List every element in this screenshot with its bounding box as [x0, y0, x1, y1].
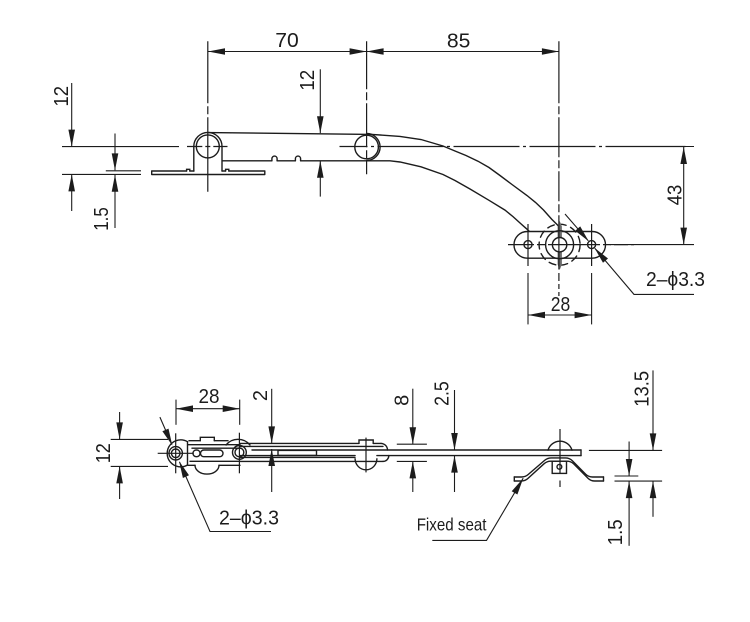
svg-text:28: 28 [199, 386, 220, 408]
svg-text:13.5: 13.5 [631, 371, 653, 407]
svg-text:12: 12 [51, 86, 73, 107]
svg-text:43: 43 [665, 185, 687, 206]
svg-text:Fixed seat: Fixed seat [417, 515, 487, 535]
svg-text:12: 12 [297, 70, 319, 91]
svg-text:2.5: 2.5 [431, 381, 453, 406]
svg-text:8: 8 [391, 395, 413, 406]
svg-text:1.5: 1.5 [605, 519, 627, 545]
svg-text:2–ϕ3.3: 2–ϕ3.3 [646, 269, 705, 291]
svg-text:1.5: 1.5 [91, 207, 113, 231]
svg-text:70: 70 [275, 30, 299, 52]
svg-text:85: 85 [447, 31, 471, 53]
svg-text:28: 28 [551, 294, 571, 316]
svg-text:12: 12 [93, 443, 115, 463]
svg-text:2–ϕ3.3: 2–ϕ3.3 [219, 508, 279, 530]
svg-text:2: 2 [250, 390, 272, 401]
